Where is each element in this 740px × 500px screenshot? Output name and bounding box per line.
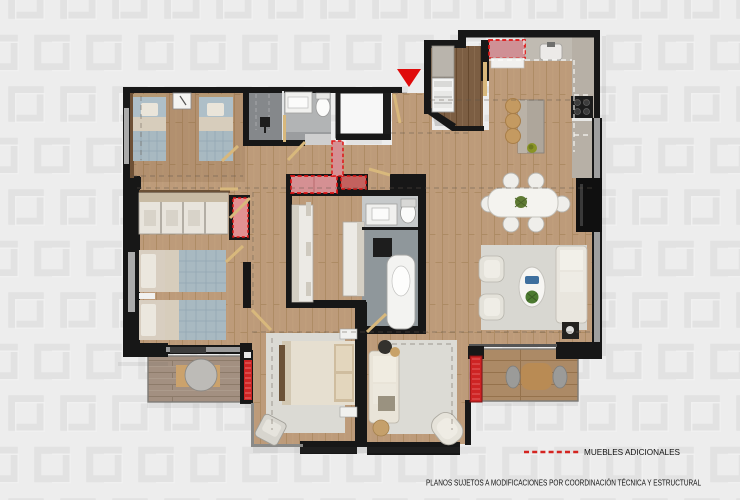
- svg-text:MUEBLES ADICIONALES: MUEBLES ADICIONALES: [584, 448, 681, 457]
- svg-text:PLANOS SUJETOS A MODIFICACIONE: PLANOS SUJETOS A MODIFICACIONES POR COOR…: [426, 478, 701, 488]
